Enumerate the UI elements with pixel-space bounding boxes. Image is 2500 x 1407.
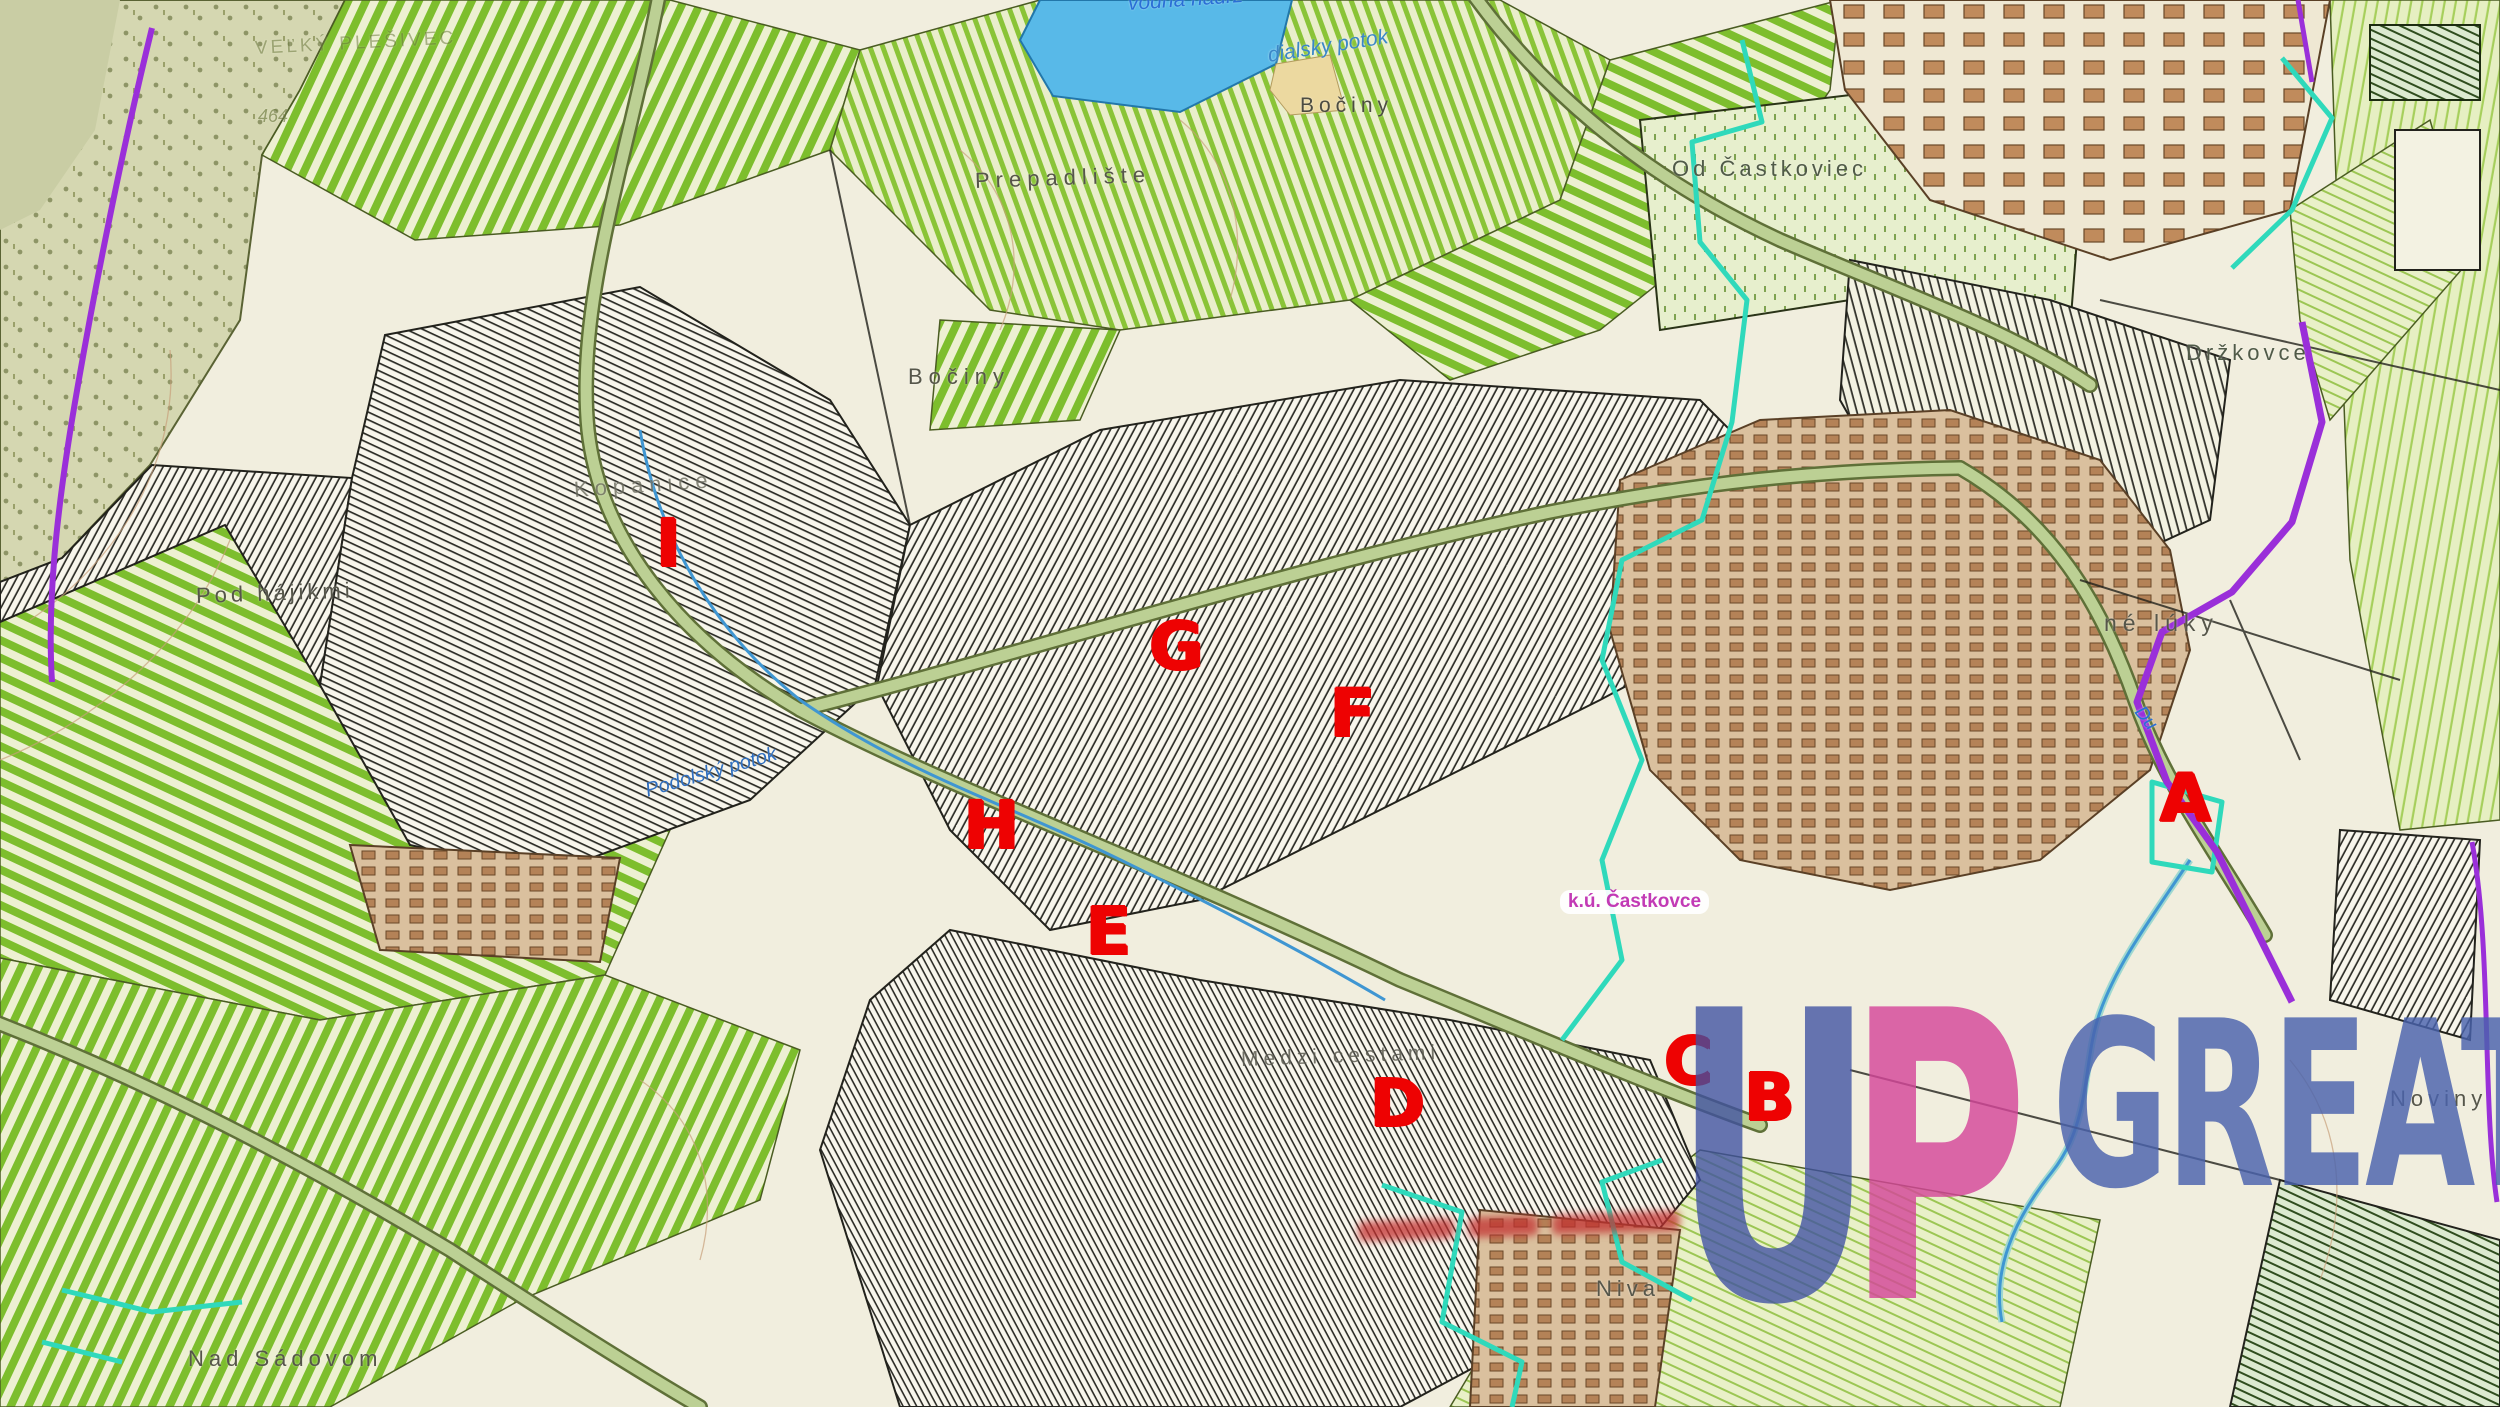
watermark-great-text: GREAT bbox=[2052, 972, 2500, 1240]
watermark: U P GREAT bbox=[0, 0, 2500, 1407]
map-canvas[interactable]: VEĽKÝ PLEŠIVEC464vodná nádrždialsky poto… bbox=[0, 0, 2500, 1407]
watermark-u-text: U bbox=[1673, 928, 1874, 1393]
watermark-p-text: P bbox=[1847, 928, 2029, 1393]
